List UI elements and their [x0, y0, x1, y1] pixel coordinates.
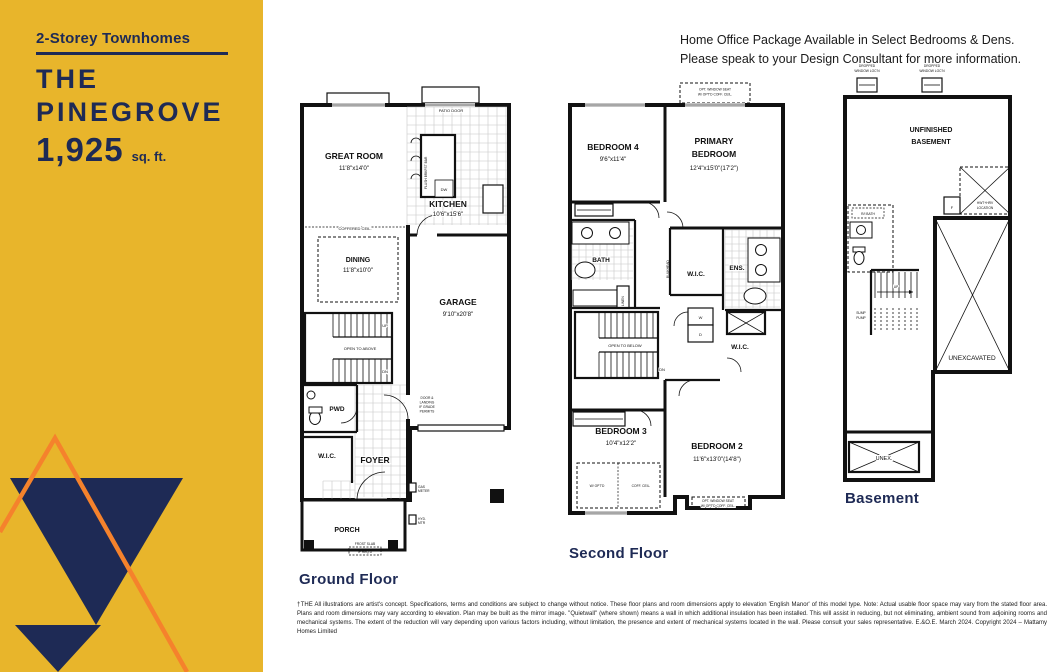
mech-note-2: LOCATION [977, 206, 994, 210]
unexcavated-label: UNEXCAVATED [948, 355, 996, 362]
second-floor-plan: OPT. WINDOW SEAT W/ OPT'D COFF. CEIL. BE… [565, 80, 790, 555]
open-to-below-note: OPEN TO BELOW [608, 343, 642, 348]
up-label-basement: UP [894, 285, 899, 289]
bedroom4-label: BEDROOM 4 [587, 142, 639, 152]
sump-note-1: SUMP [856, 311, 866, 315]
bulkhead-label: BULKHEAD [666, 260, 670, 278]
garage-label: GARAGE [439, 297, 477, 307]
seat-note-top-2: W/ OPT'D COFF. CEIL. [698, 93, 732, 97]
washer-label: W [699, 315, 703, 320]
window-note-right-2: WINDOW LOC'N [919, 69, 945, 73]
window-note-left-1: DROPPED [859, 64, 876, 68]
linen-label: LINEN [621, 296, 625, 306]
bedroom3-dims: 10'4"x12'2" [606, 440, 637, 447]
primary-bedroom-dims: 12'4"x15'0"(17'2") [690, 165, 738, 172]
home-office-note-line1: Home Office Package Available in Select … [680, 31, 1050, 50]
kitchen-label: KITCHEN [429, 199, 467, 209]
dryer-label: D [699, 332, 702, 337]
basement-plan: DROPPED WINDOW LOC'N DROPPED WINDOW LOC'… [835, 60, 1015, 515]
sump-note-2: PUMP [856, 316, 866, 320]
dining-label: DINING [346, 257, 371, 264]
garage-dims: 9'10"x20'8" [443, 311, 474, 318]
porch-label: PORCH [334, 527, 359, 534]
brand-logo [0, 430, 200, 672]
powder-room-label: PWD [329, 406, 344, 413]
great-room-dims: 11'8"x14'0" [339, 165, 369, 172]
bedroom3-label: BEDROOM 3 [595, 426, 647, 436]
bed2-closet-x [727, 312, 765, 334]
unfinished-basement-label-2: BASEMENT [911, 139, 951, 146]
mech-note-1: HWT+HRV [977, 201, 994, 205]
ensuite-label: ENS. [729, 265, 744, 272]
bed3-coff-note-1: W/ OPT'D [590, 484, 605, 488]
great-room-label: GREAT ROOM [325, 151, 383, 161]
ground-floor-title: Ground Floor [299, 571, 398, 588]
bedroom2-dims: 11'6"x13'0"(14'8") [693, 456, 741, 463]
patio-door-label: PATIO DOOR [439, 108, 464, 113]
basement-title: Basement [845, 490, 919, 507]
wic-primary-label: W.I.C. [687, 271, 705, 278]
model-title-line1: THE [36, 64, 99, 95]
second-floor-title: Second Floor [569, 545, 668, 562]
seat-note-top-1: OPT. WINDOW SEAT [699, 88, 731, 92]
foyer-label: FOYER [360, 455, 389, 465]
sidebar: 2-Storey Townhomes THE PINEGROVE 1,925 s… [0, 0, 263, 672]
basement-window-wells [857, 78, 942, 92]
area-unit: sq. ft. [132, 149, 167, 164]
unexcavated-block [935, 218, 1010, 372]
ground-meters [409, 483, 416, 524]
brochure-sheet: 2-Storey Townhomes THE PINEGROVE 1,925 s… [0, 0, 1056, 672]
area-stat: 1,925 sq. ft. [36, 131, 166, 169]
frost-note-1: FROST SLAB [355, 542, 376, 546]
door-note-2: LANDING [420, 401, 435, 405]
bath-label: BATH [592, 257, 610, 264]
bedroom2-label: BEDROOM 2 [691, 441, 743, 451]
seat-note-bottom-2: W/ OPT'D COFF. CEIL. [701, 504, 735, 508]
ground-floor-plan: PATIO DOOR GREAT ROOM 11'8"x14'0" KITCHE… [297, 85, 522, 595]
title-underline [36, 52, 228, 55]
ground-outer-walls [302, 105, 509, 500]
bed3-coff-note-2: COFF. CEIL. [632, 484, 651, 488]
gas-meter-note-2: METER [418, 489, 430, 493]
dn-label-second: DN [659, 367, 665, 372]
wic2-label: W.I.C. [731, 344, 749, 351]
open-to-above-note: OPEN TO ABOVE [344, 346, 377, 351]
dn-label: DN [382, 369, 388, 374]
primary-bedroom-label-1: PRIMARY [695, 136, 734, 146]
wic-label: W.I.C. [318, 453, 336, 460]
dining-dims: 11'8"x10'0" [343, 267, 373, 274]
primary-bedroom-label-2: BEDROOM [692, 149, 736, 159]
hyd-meter-note-2: MTR [418, 521, 426, 525]
door-note-3: IF GRADE [419, 405, 435, 409]
door-note-4: PERMITS [420, 410, 435, 414]
door-note-1: DOOR & [420, 396, 434, 400]
window-note-left-2: WINDOW LOC'N [854, 69, 880, 73]
seat-note-bottom-1: OPT. WINDOW SEAT [702, 499, 734, 503]
frost-note-2: IF REQ'D [358, 550, 373, 554]
island-note: FLUSH BRKFST BAR [424, 156, 428, 189]
category-label: 2-Storey Townhomes [36, 30, 190, 47]
bath-roughin-label: R/I BATH [861, 212, 875, 216]
kitchen-dims: 10'6"x15'6" [433, 211, 464, 218]
coffered-ceiling-note: COFFERED CEIL. [338, 226, 371, 231]
up-label: UP [382, 323, 388, 328]
unex-label: UNEX. [876, 456, 893, 462]
unfinished-basement-label-1: UNFINISHED [910, 127, 953, 134]
legal-disclaimer: †THE All illustrations are artist's conc… [297, 601, 1047, 637]
bedroom4-dims: 9'6"x11'4" [600, 156, 627, 163]
site-marker [490, 489, 504, 503]
model-title-line2: PINEGROVE [36, 97, 224, 128]
area-value: 1,925 [36, 131, 124, 169]
window-note-right-1: DROPPED [924, 64, 941, 68]
dishwasher-label: DW [441, 187, 448, 192]
